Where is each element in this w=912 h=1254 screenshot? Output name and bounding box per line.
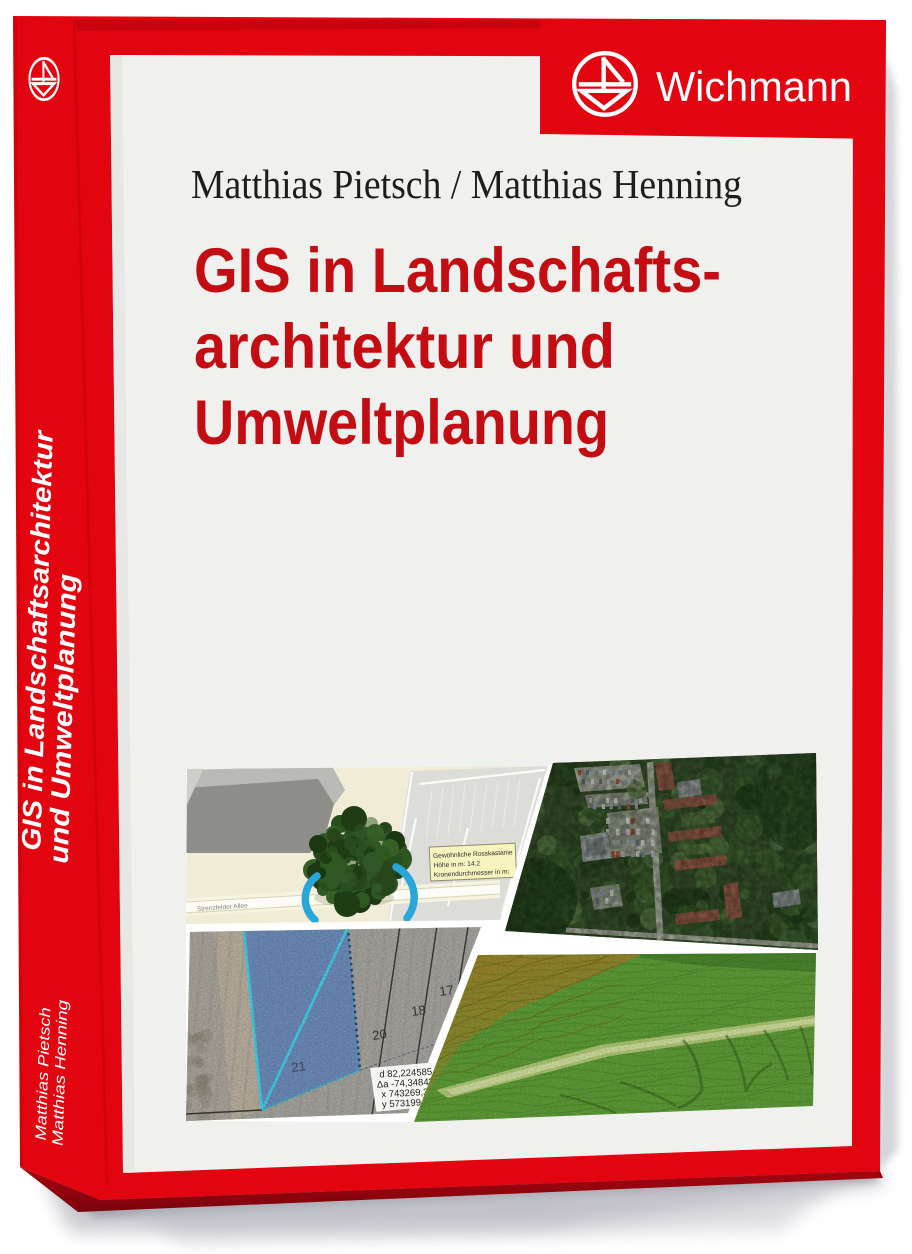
svg-text:GIS in Landschafts-: GIS in Landschafts- [194,236,721,306]
svg-text:Umweltplanung: Umweltplanung [194,388,609,458]
svg-text:Matthias Pietsch / Matthias He: Matthias Pietsch / Matthias Henning [191,161,742,207]
svg-text:Wichmann: Wichmann [656,63,852,110]
svg-text:architektur und: architektur und [194,312,615,382]
